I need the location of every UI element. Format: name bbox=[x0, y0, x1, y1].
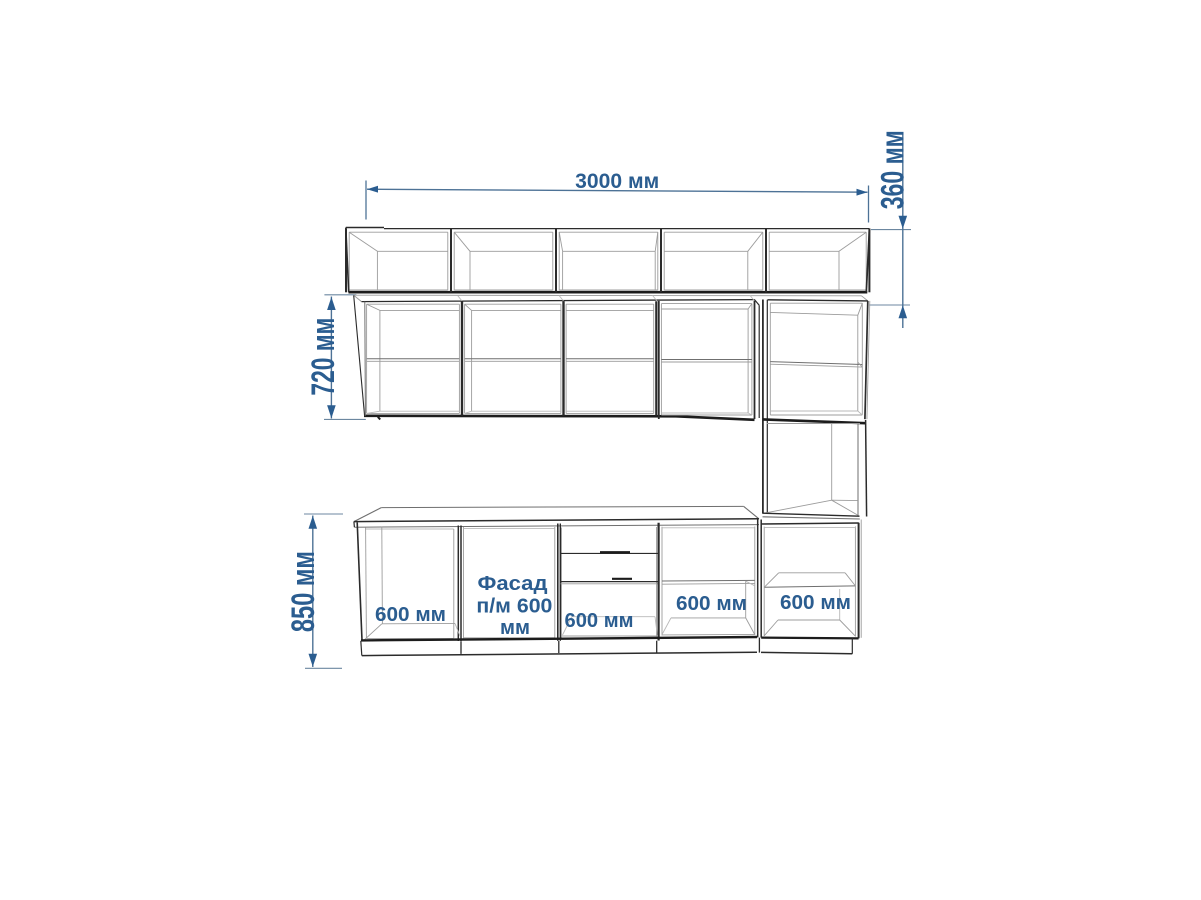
svg-text:мм: мм bbox=[500, 617, 530, 639]
svg-text:600 мм: 600 мм bbox=[375, 604, 446, 626]
svg-text:600 мм: 600 мм bbox=[780, 592, 851, 614]
svg-text:720 мм: 720 мм bbox=[305, 318, 341, 396]
svg-text:600 мм: 600 мм bbox=[676, 593, 747, 615]
svg-text:850 мм: 850 мм bbox=[285, 551, 321, 632]
svg-text:600 мм: 600 мм bbox=[565, 610, 634, 632]
svg-text:360 мм: 360 мм bbox=[874, 130, 910, 209]
svg-text:Фасад: Фасад bbox=[478, 573, 548, 595]
svg-text:п/м 600: п/м 600 bbox=[476, 596, 552, 618]
svg-text:3000 мм: 3000 мм bbox=[575, 170, 659, 193]
